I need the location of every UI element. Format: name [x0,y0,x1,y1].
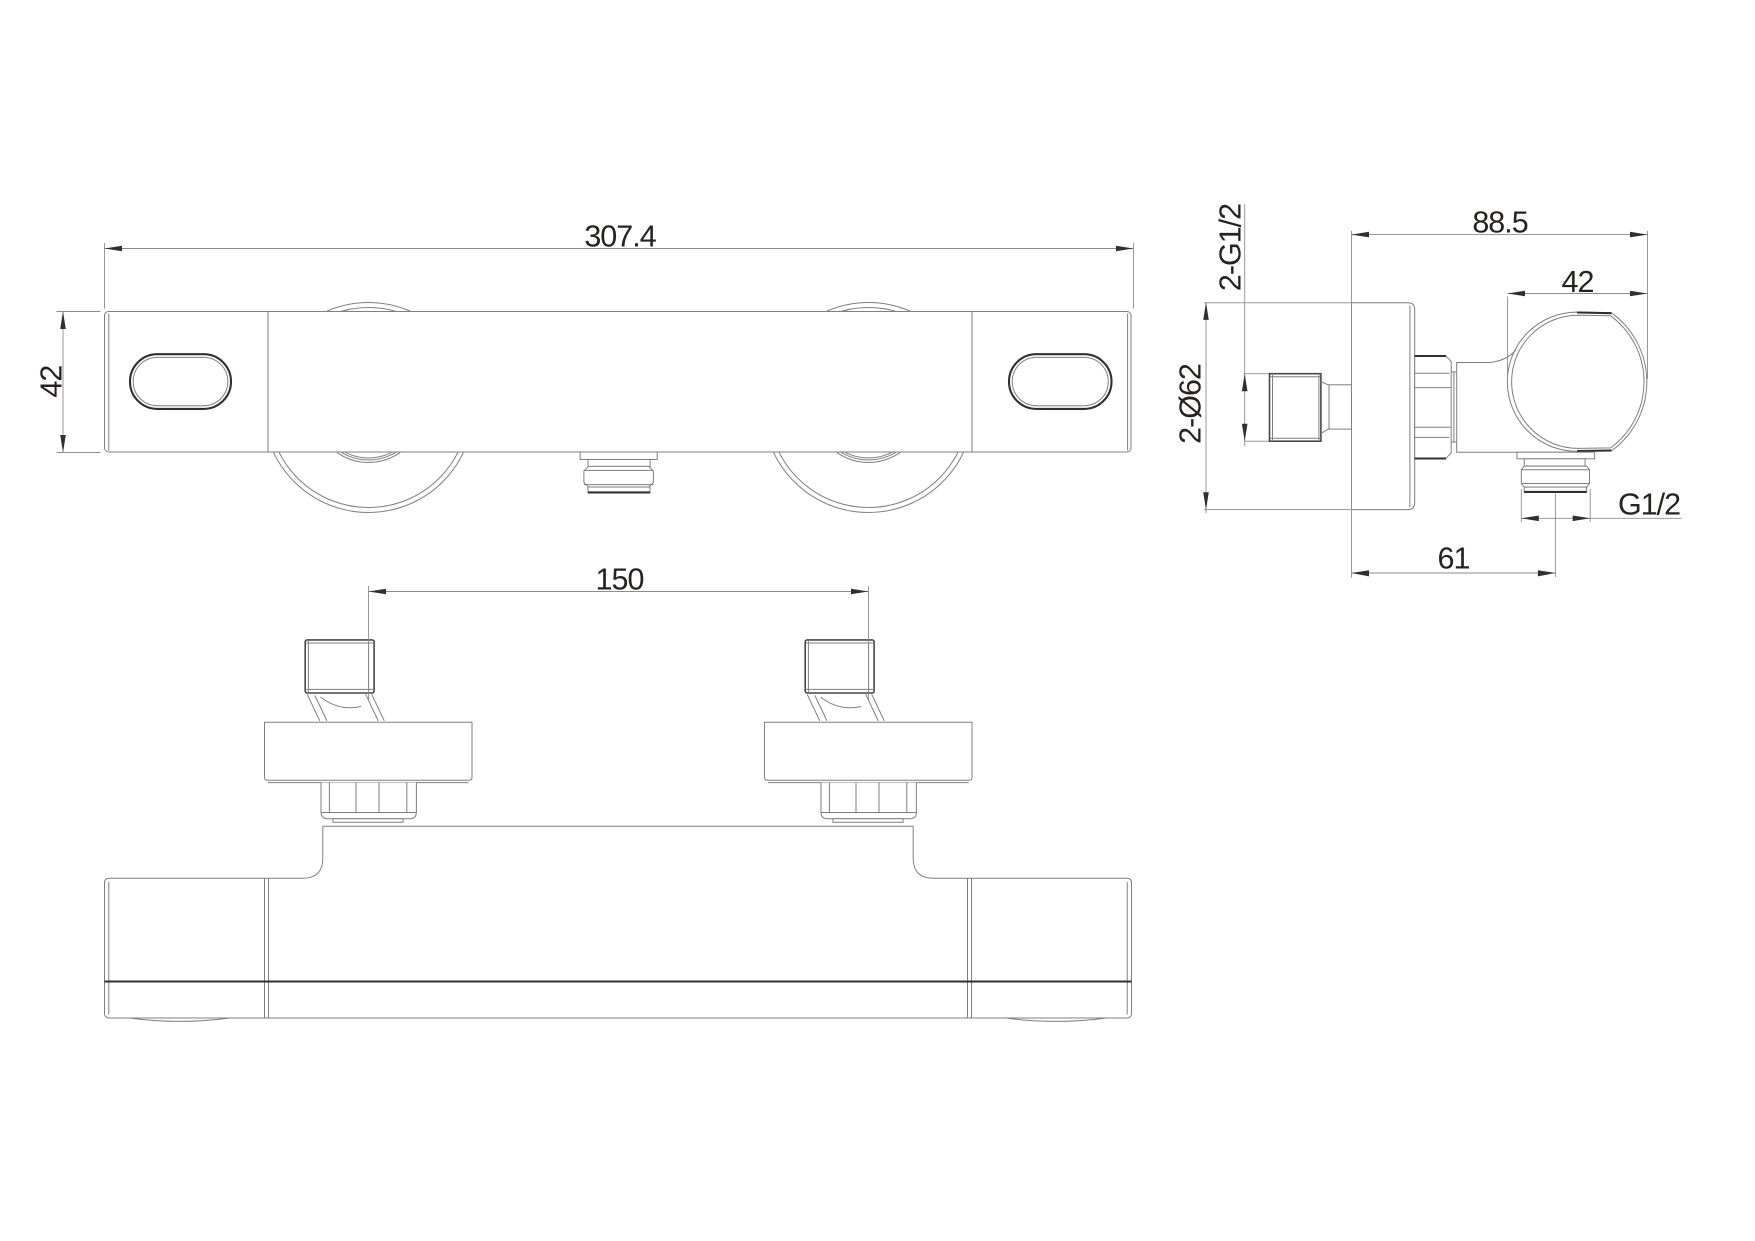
svg-text:42: 42 [1562,265,1594,299]
svg-text:42: 42 [35,366,69,398]
svg-text:88.5: 88.5 [1472,206,1527,240]
svg-text:307.4: 307.4 [584,220,656,254]
svg-text:2-G1/2: 2-G1/2 [1214,204,1248,291]
svg-text:150: 150 [596,563,644,597]
svg-text:2-Ø62: 2-Ø62 [1174,364,1208,444]
svg-text:G1/2: G1/2 [1618,488,1680,522]
svg-text:61: 61 [1438,542,1470,576]
